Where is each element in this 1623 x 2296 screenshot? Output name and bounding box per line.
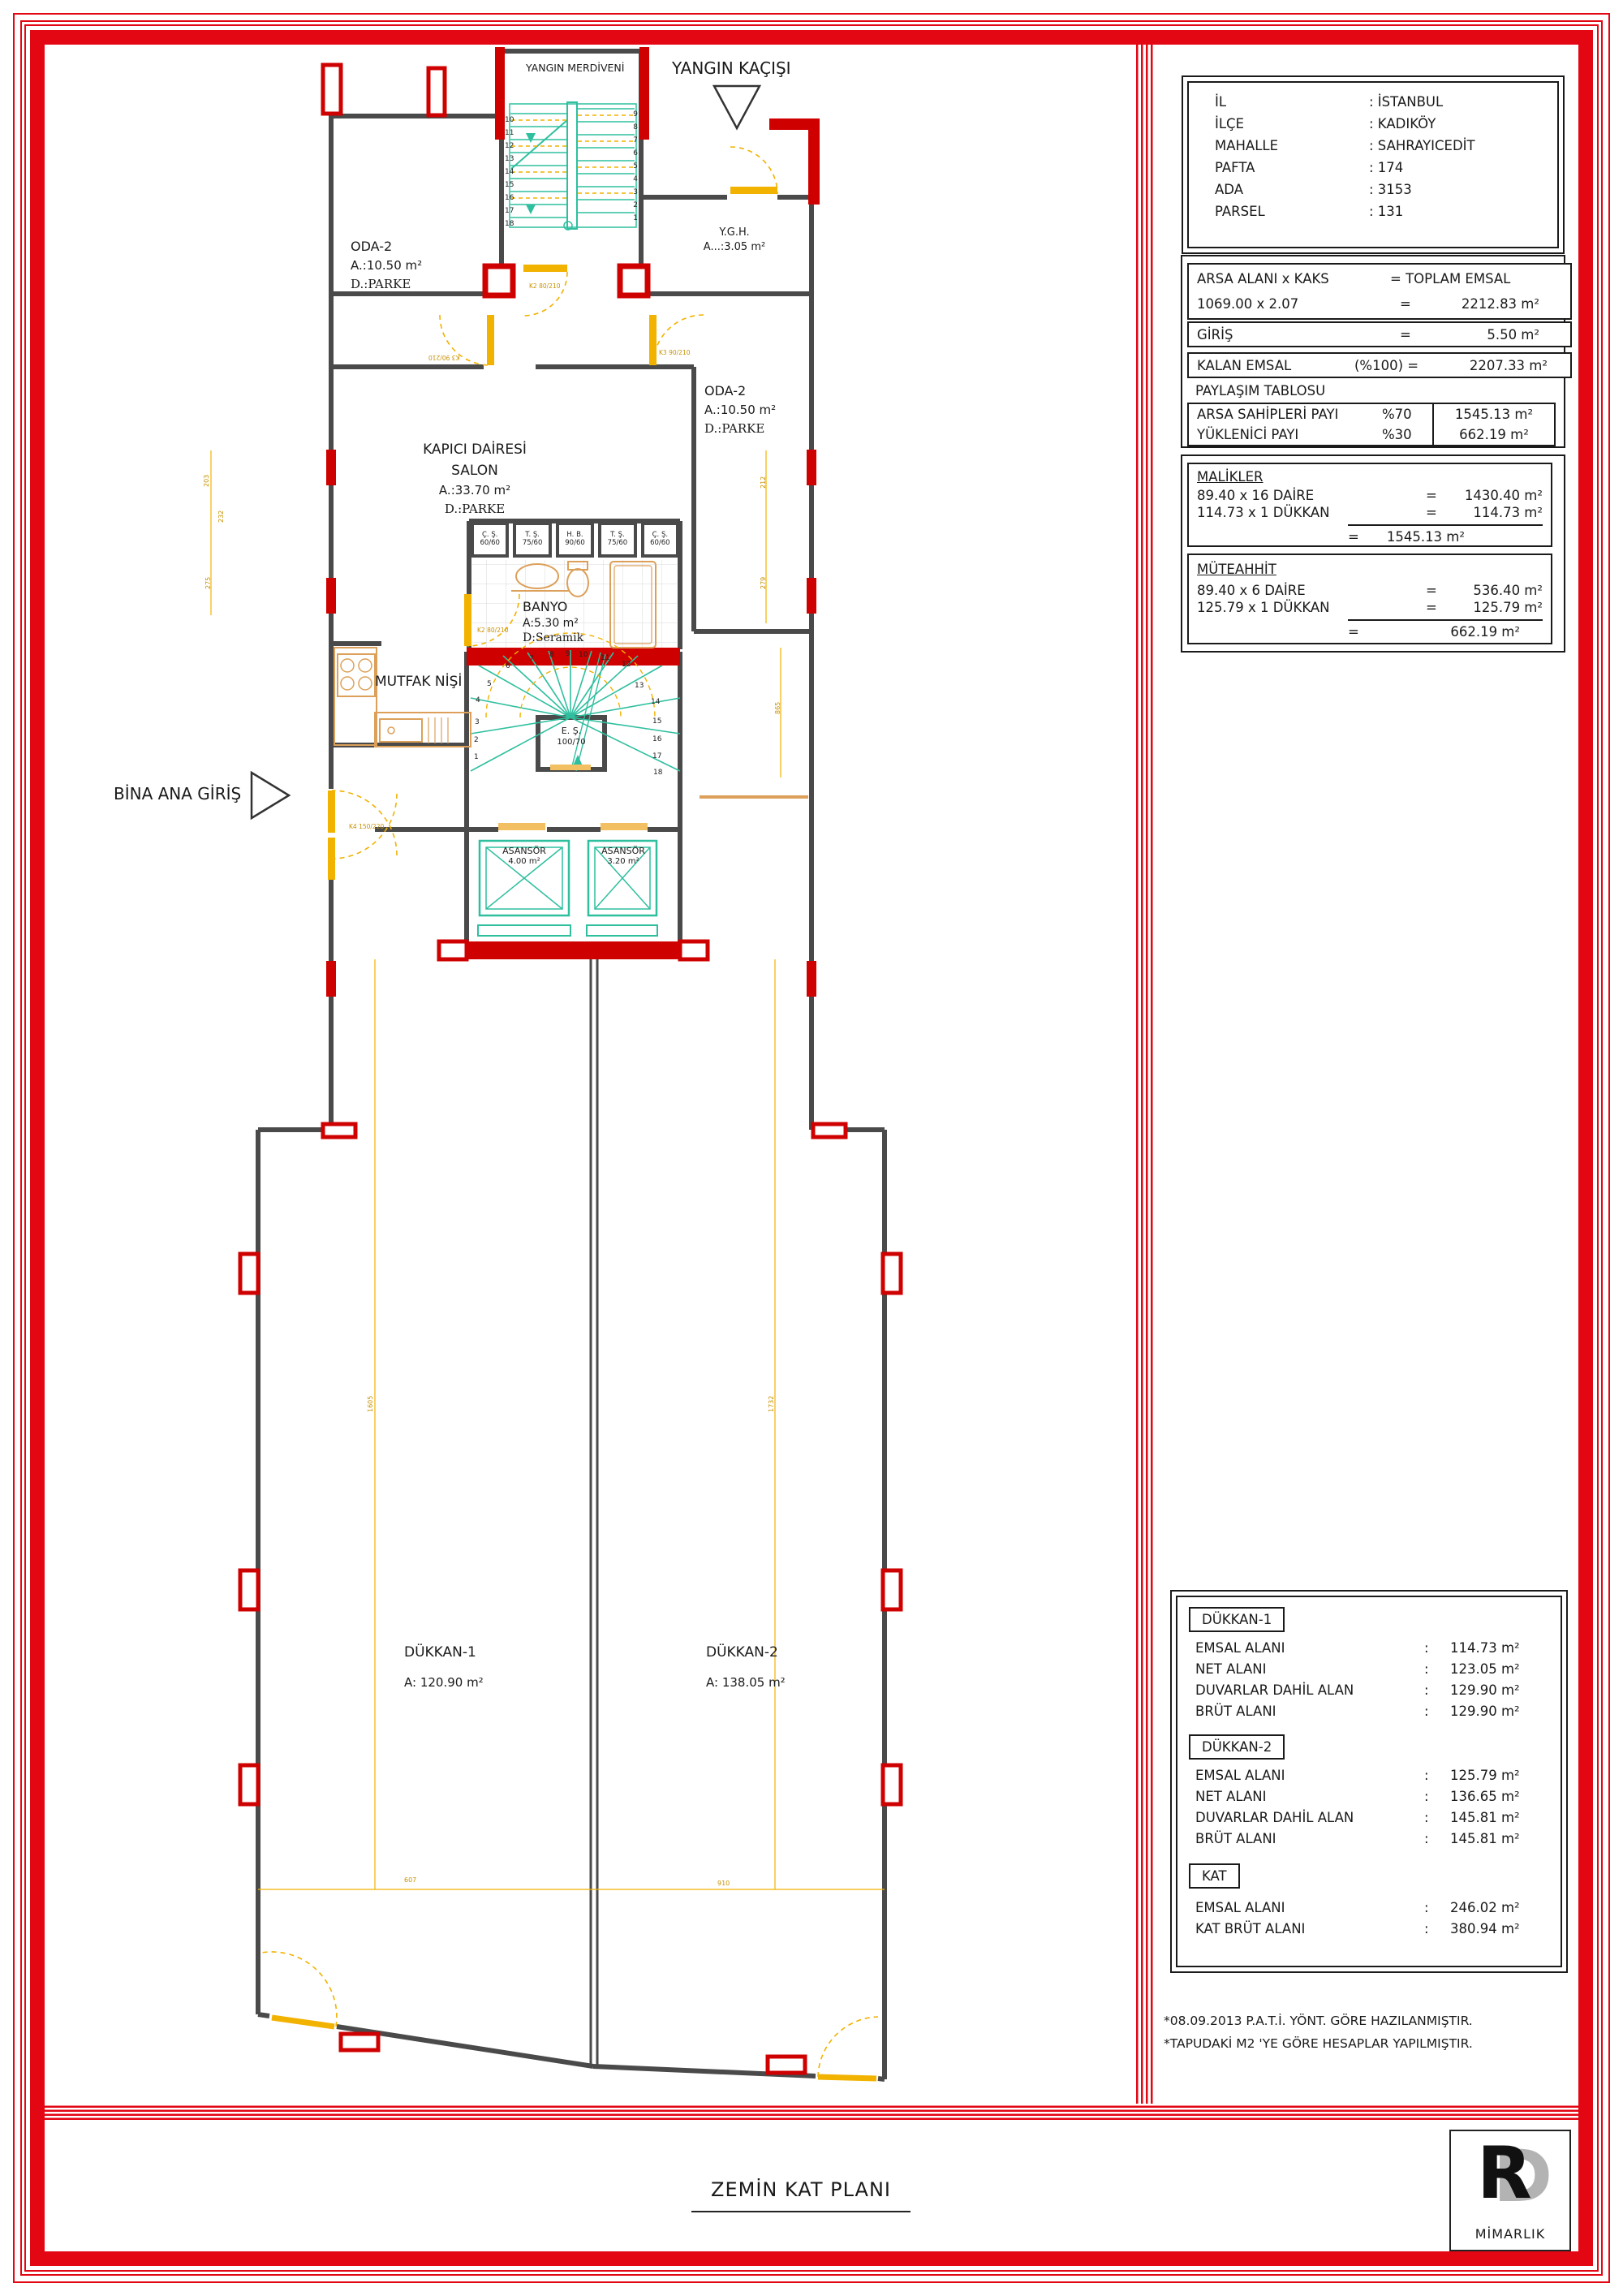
cabinet-size: 90/60 — [565, 540, 585, 548]
door-tag: K2 80/210 — [529, 282, 560, 290]
area-value: 125.79 m² — [1439, 1768, 1549, 1783]
equals-sign: = — [1400, 296, 1419, 312]
note-line: *TAPUDAKİ M2 'YE GÖRE HESAPLAR YAPILMIŞT… — [1164, 2032, 1473, 2055]
parcel-value: : KADIKÖY — [1369, 116, 1557, 131]
dimension-label: 1732 — [768, 1396, 775, 1412]
shop-name: DÜKKAN-1 — [404, 1644, 484, 1661]
kat-title: KAT — [1189, 1863, 1240, 1889]
area-row: KAT BRÜT ALANI : 380.94 m² — [1189, 1918, 1549, 1939]
room-name-1: KAPICI DAİRESİ — [398, 440, 552, 461]
stair-number: 4 — [625, 175, 638, 183]
dimension-label: 279 — [760, 577, 767, 589]
area-label: DUVARLAR DAHİL ALAN — [1195, 1810, 1424, 1825]
parcel-value: : 3153 — [1369, 182, 1557, 197]
room-area: A.:10.50 m² — [704, 401, 776, 420]
area-label: BRÜT ALANI — [1195, 1704, 1424, 1719]
paylasim-row: ARSA SAHİPLERİ PAYI %70 1545.13 m² — [1189, 404, 1554, 424]
banyo-label: BANYO A:5.30 m² D:Seramik — [523, 599, 583, 645]
stair-number: 5 — [625, 162, 638, 170]
colon: : — [1424, 1768, 1439, 1783]
cabinet-row: Ç. Ş. 60/60 T. Ş. 75/60 H. B. 90/60 T. Ş… — [471, 522, 679, 558]
area-value: 114.73 m² — [1439, 1640, 1549, 1656]
value: 1430.40 m² — [1445, 488, 1543, 503]
parcel-row: İL : İSTANBUL — [1189, 91, 1557, 113]
door-tag: K3 90/210 — [659, 349, 690, 356]
area-label: KAT BRÜT ALANI — [1195, 1921, 1424, 1936]
fire-stair-label: YANGIN MERDİVENİ — [526, 62, 624, 74]
paylasim-title: PAYLAŞIM TABLOSU — [1195, 383, 1325, 398]
parcel-label: ADA — [1215, 182, 1369, 197]
parcel-label: İL — [1215, 94, 1369, 110]
kat-rows: EMSAL ALANI : 246.02 m² KAT BRÜT ALANI :… — [1189, 1897, 1549, 1939]
room-area: A.:33.70 m² — [398, 481, 552, 500]
fan-step-number: 17 — [652, 752, 661, 760]
kalan-label: KALAN EMSAL — [1197, 358, 1354, 373]
fan-step-number: 12 — [622, 661, 631, 669]
fan-step-number: 1 — [474, 753, 479, 761]
cabinet-size: 75/60 — [608, 540, 628, 548]
cabinet-box: T. Ş. 75/60 — [598, 522, 636, 558]
stair-numbers-right: 987654321 — [625, 110, 638, 222]
cabinet-size: 60/60 — [650, 540, 670, 548]
shop-area: A: 120.90 m² — [404, 1675, 484, 1690]
fire-escape-label: YANGIN KAÇIŞI — [672, 58, 791, 78]
malikler-row: 114.73 x 1 DÜKKAN = 114.73 m² — [1197, 504, 1543, 521]
fan-step-number: 2 — [474, 736, 479, 744]
muteahhit-total: = 662.19 m² — [1348, 619, 1543, 640]
parcel-row: PAFTA : 174 — [1189, 157, 1557, 179]
paylasim-label: ARSA SAHİPLERİ PAYI — [1197, 407, 1382, 422]
emsal-table: ARSA ALANI x KAKS = TOPLAM EMSAL 1069.00… — [1181, 255, 1565, 448]
fan-step-number: 18 — [653, 769, 662, 777]
total-value: 1545.13 m² — [1367, 529, 1543, 545]
total-value: 662.19 m² — [1367, 624, 1543, 640]
area-value: 145.81 m² — [1439, 1831, 1549, 1846]
fan-step-number: 8 — [549, 651, 554, 659]
parcel-label: İLÇE — [1215, 116, 1369, 131]
cabinet-box: Ç. Ş. 60/60 — [641, 522, 679, 558]
cabinet-box: H. B. 90/60 — [556, 522, 594, 558]
value: 125.79 m² — [1445, 600, 1543, 615]
notes: *08.09.2013 P.A.T.İ. YÖNT. GÖRE HAZILANM… — [1164, 2010, 1473, 2055]
asansor-name: ASANSÖR — [591, 846, 656, 857]
colon: : — [1424, 1661, 1439, 1677]
drawing-title: ZEMİN KAT PLANI — [691, 2178, 911, 2212]
elevator-2-label: ASANSÖR 3.20 m² — [591, 846, 656, 867]
area-row: DUVARLAR DAHİL ALAN : 129.90 m² — [1189, 1679, 1549, 1700]
parcel-row: ADA : 3153 — [1189, 179, 1557, 200]
kalan-emsal-box: KALAN EMSAL (%100) = 2207.33 m² — [1187, 352, 1572, 378]
room-name: ODA-2 — [351, 237, 422, 256]
stair-number: 16 — [505, 194, 518, 202]
area-value: 380.94 m² — [1439, 1921, 1549, 1936]
stair-number: 14 — [505, 168, 518, 176]
emsal-total: 2212.83 m² — [1419, 296, 1562, 312]
emsal-calc: 1069.00 x 2.07 — [1197, 296, 1400, 312]
area-label: DUVARLAR DAHİL ALAN — [1195, 1682, 1424, 1698]
room-area: A.:10.50 m² — [351, 256, 422, 275]
stair-number: 7 — [625, 136, 638, 144]
stair-number: 2 — [625, 201, 638, 209]
paylasim-value: 662.19 m² — [1432, 424, 1554, 445]
emsal-header-left: ARSA ALANI x KAKS — [1197, 271, 1390, 286]
stair-number: 9 — [625, 110, 638, 118]
dimension-label: 275 — [204, 577, 212, 589]
parcel-label: PAFTA — [1215, 160, 1369, 175]
parcel-row: İLÇE : KADIKÖY — [1189, 113, 1557, 135]
colon: : — [1424, 1900, 1439, 1915]
door-tag: K3 90/210 — [428, 354, 459, 361]
es-name: E. Ş. — [540, 726, 602, 737]
parcel-value: : 174 — [1369, 160, 1557, 175]
giris-box: GİRİŞ = 5.50 m² — [1187, 321, 1572, 347]
logo-text: MİMARLIK — [1451, 2226, 1569, 2242]
room-floor: D.:PARKE — [398, 500, 552, 519]
value: 114.73 m² — [1445, 505, 1543, 520]
area-value: 123.05 m² — [1439, 1661, 1549, 1677]
shop-2-label: DÜKKAN-2 A: 138.05 m² — [706, 1644, 786, 1690]
malikler-title: MALİKLER — [1197, 469, 1543, 485]
es-size: 100/70 — [540, 737, 602, 747]
dimension-label: 607 — [404, 1876, 416, 1884]
paylasim-label: YÜKLENİCİ PAYI — [1197, 427, 1382, 442]
area-row: NET ALANI : 136.65 m² — [1189, 1786, 1549, 1807]
muteahhit-title: MÜTEAHHİT — [1197, 562, 1543, 577]
fan-step-number: 16 — [652, 735, 661, 743]
colon: : — [1424, 1682, 1439, 1698]
shop-areas-table: DÜKKAN-1 EMSAL ALANI : 114.73 m² NET ALA… — [1176, 1596, 1562, 1967]
fan-step-number: 13 — [635, 682, 644, 690]
equals-sign: = — [1426, 583, 1445, 598]
fan-step-number: 5 — [487, 680, 492, 688]
equals-sign: = — [1426, 488, 1445, 503]
dukkan-1-title: DÜKKAN-1 — [1189, 1607, 1285, 1632]
dimension-label: 203 — [203, 475, 210, 487]
fan-step-number: 7 — [529, 655, 534, 663]
area-value: 246.02 m² — [1439, 1900, 1549, 1915]
area-label: EMSAL ALANI — [1195, 1900, 1424, 1915]
colon: : — [1424, 1789, 1439, 1804]
room-floor: D.:PARKE — [351, 275, 422, 294]
shop-area: A: 138.05 m² — [706, 1675, 786, 1690]
colon: : — [1424, 1831, 1439, 1846]
toplam-emsal-box: ARSA ALANI x KAKS = TOPLAM EMSAL 1069.00… — [1187, 263, 1572, 320]
asansor-area: 4.00 m² — [487, 857, 562, 868]
stair-number: 8 — [625, 123, 638, 131]
asansor-area: 3.20 m² — [591, 857, 656, 868]
area-row: NET ALANI : 123.05 m² — [1189, 1658, 1549, 1679]
area-row: DUVARLAR DAHİL ALAN : 145.81 m² — [1189, 1807, 1549, 1828]
area-row: EMSAL ALANI : 246.02 m² — [1189, 1897, 1549, 1918]
equals-sign: = — [1426, 505, 1445, 520]
fan-step-number: 11 — [601, 654, 609, 662]
dimension-label: 910 — [717, 1880, 730, 1887]
logo-letter-r: R — [1477, 2131, 1532, 2215]
area-row: EMSAL ALANI : 125.79 m² — [1189, 1764, 1549, 1786]
dimension-label: 232 — [217, 510, 225, 523]
parcel-value: : İSTANBUL — [1369, 94, 1557, 110]
fan-step-number: 15 — [652, 717, 661, 726]
area-label: EMSAL ALANI — [1195, 1640, 1424, 1656]
oda2-left-label: ODA-2 A.:10.50 m² D.:PARKE — [351, 237, 422, 293]
stair-number: 3 — [625, 188, 638, 196]
paylasim-row: YÜKLENİCİ PAYI %30 662.19 m² — [1189, 424, 1554, 445]
area-label: EMSAL ALANI — [1195, 1768, 1424, 1783]
cabinet-size: 60/60 — [480, 540, 500, 548]
equals-sign: = — [1348, 624, 1367, 640]
stair-number: 6 — [625, 149, 638, 157]
equals-sign: = — [1426, 600, 1445, 615]
door-tag: K4 150/220 — [349, 823, 384, 830]
malikler-rows: 89.40 x 16 DAİRE = 1430.40 m² 114.73 x 1… — [1197, 487, 1543, 521]
room-name: ODA-2 — [704, 381, 776, 401]
expression: 89.40 x 16 DAİRE — [1197, 488, 1426, 503]
ygh-area: A...:3.05 m² — [690, 240, 779, 255]
dukkan-2-rows: EMSAL ALANI : 125.79 m² NET ALANI : 136.… — [1189, 1764, 1549, 1849]
elevator-1-label: ASANSÖR 4.00 m² — [487, 846, 562, 867]
note-line: *08.09.2013 P.A.T.İ. YÖNT. GÖRE HAZILANM… — [1164, 2010, 1473, 2032]
ygh-room-label: Y.G.H. A...:3.05 m² — [690, 226, 779, 254]
area-label: BRÜT ALANI — [1195, 1831, 1424, 1846]
malikler-row: 89.40 x 16 DAİRE = 1430.40 m² — [1197, 487, 1543, 504]
architect-logo: D R MİMARLIK — [1449, 2130, 1571, 2251]
area-value: 136.65 m² — [1439, 1789, 1549, 1804]
room-area: A:5.30 m² — [523, 616, 583, 631]
colon: : — [1424, 1921, 1439, 1936]
paylasim-percent: %30 — [1382, 427, 1432, 442]
giris-label: GİRİŞ — [1197, 327, 1400, 342]
kalan-percent: (%100) = — [1354, 358, 1436, 373]
fan-step-number: 10 — [579, 651, 588, 659]
dukkan-1-rows: EMSAL ALANI : 114.73 m² NET ALANI : 123.… — [1189, 1637, 1549, 1721]
equals-sign: = — [1400, 327, 1419, 342]
cabinet-box: Ç. Ş. 60/60 — [471, 522, 509, 558]
colon: : — [1424, 1640, 1439, 1656]
oda2-right-label: ODA-2 A.:10.50 m² D.:PARKE — [704, 381, 776, 437]
area-value: 129.90 m² — [1439, 1682, 1549, 1698]
vertical-divider — [1136, 45, 1156, 2106]
expression: 125.79 x 1 DÜKKAN — [1197, 600, 1426, 615]
parcel-label: MAHALLE — [1215, 138, 1369, 153]
fan-step-number: 3 — [475, 718, 480, 726]
equals-sign: = — [1348, 529, 1367, 545]
stair-number: 15 — [505, 181, 518, 189]
room-name-2: SALON — [398, 461, 552, 482]
paylasim-percent: %70 — [1382, 407, 1432, 422]
parcel-row: PARSEL : 131 — [1189, 200, 1557, 222]
horizontal-divider — [45, 2104, 1578, 2120]
emsal-header-right: = TOPLAM EMSAL — [1390, 271, 1562, 286]
expression: 114.73 x 1 DÜKKAN — [1197, 505, 1426, 520]
malikler-total: = 1545.13 m² — [1348, 524, 1543, 545]
paylasim-rows-box: ARSA SAHİPLERİ PAYI %70 1545.13 m² YÜKLE… — [1187, 403, 1556, 446]
stair-number: 12 — [505, 142, 518, 150]
room-floor: D:Seramik — [523, 631, 583, 645]
stair-number: 17 — [505, 207, 518, 215]
room-name: BANYO — [523, 599, 583, 616]
stair-number: 11 — [505, 129, 518, 137]
giris-value: 5.50 m² — [1419, 327, 1562, 342]
malikler-box: MALİKLER 89.40 x 16 DAİRE = 1430.40 m² 1… — [1187, 463, 1552, 547]
fan-step-number: 4 — [476, 696, 480, 704]
dukkan-2-title: DÜKKAN-2 — [1189, 1734, 1285, 1760]
stair-number: 18 — [505, 220, 518, 228]
cabinet-box: T. Ş. 75/60 — [513, 522, 551, 558]
shares-group-box: MALİKLER 89.40 x 16 DAİRE = 1430.40 m² 1… — [1181, 454, 1565, 653]
dimension-label: 865 — [774, 702, 781, 714]
muteahhit-row: 125.79 x 1 DÜKKAN = 125.79 m² — [1197, 599, 1543, 616]
kalan-value: 2207.33 m² — [1436, 358, 1562, 373]
muteahhit-rows: 89.40 x 6 DAİRE = 536.40 m² 125.79 x 1 D… — [1197, 582, 1543, 616]
shop-name: DÜKKAN-2 — [706, 1644, 786, 1661]
value: 536.40 m² — [1445, 583, 1543, 598]
stair-number: 10 — [505, 116, 518, 124]
cabinet-size: 75/60 — [523, 540, 543, 548]
mutfak-label: MUTFAK NİŞİ — [375, 674, 462, 690]
area-row: EMSAL ALANI : 114.73 m² — [1189, 1637, 1549, 1658]
fan-step-number: 9 — [566, 650, 570, 658]
expression: 89.40 x 6 DAİRE — [1197, 583, 1426, 598]
area-row: BRÜT ALANI : 129.90 m² — [1189, 1700, 1549, 1721]
asansor-name: ASANSÖR — [487, 846, 562, 857]
dimension-label: 1605 — [367, 1396, 374, 1412]
parcel-row: MAHALLE : SAHRAYICEDİT — [1189, 135, 1557, 157]
kapici-dairesi-label: KAPICI DAİRESİ SALON A.:33.70 m² D.:PARK… — [398, 440, 552, 518]
area-value: 145.81 m² — [1439, 1810, 1549, 1825]
parcel-value: : 131 — [1369, 204, 1557, 219]
parcel-value: : SAHRAYICEDİT — [1369, 138, 1557, 153]
stair-number: 13 — [505, 155, 518, 163]
area-label: NET ALANI — [1195, 1661, 1424, 1677]
area-value: 129.90 m² — [1439, 1704, 1549, 1719]
ygh-name: Y.G.H. — [690, 226, 779, 240]
muteahhit-box: MÜTEAHHİT 89.40 x 6 DAİRE = 536.40 m² 12… — [1187, 554, 1552, 644]
area-label: NET ALANI — [1195, 1789, 1424, 1804]
colon: : — [1424, 1704, 1439, 1719]
colon: : — [1424, 1810, 1439, 1825]
room-floor: D.:PARKE — [704, 420, 776, 438]
muteahhit-row: 89.40 x 6 DAİRE = 536.40 m² — [1197, 582, 1543, 599]
fan-step-number: 14 — [651, 698, 660, 706]
dimension-label: 212 — [760, 476, 767, 489]
main-entrance-label: BİNA ANA GİRİŞ — [114, 784, 241, 803]
stair-numbers-left: 101112131415161718 — [505, 116, 518, 228]
area-row: BRÜT ALANI : 145.81 m² — [1189, 1828, 1549, 1849]
elevator-shaft-label: E. Ş. 100/70 — [540, 726, 602, 747]
parcel-label: PARSEL — [1215, 204, 1369, 219]
stair-number: 1 — [625, 214, 638, 222]
fan-step-number: 6 — [506, 662, 510, 670]
parcel-info-table: İL : İSTANBUL İLÇE : KADIKÖY MAHALLE : S… — [1187, 81, 1559, 248]
door-tag: K2 80/210 — [477, 627, 508, 634]
shop-1-label: DÜKKAN-1 A: 120.90 m² — [404, 1644, 484, 1690]
paylasim-value: 1545.13 m² — [1432, 404, 1554, 424]
